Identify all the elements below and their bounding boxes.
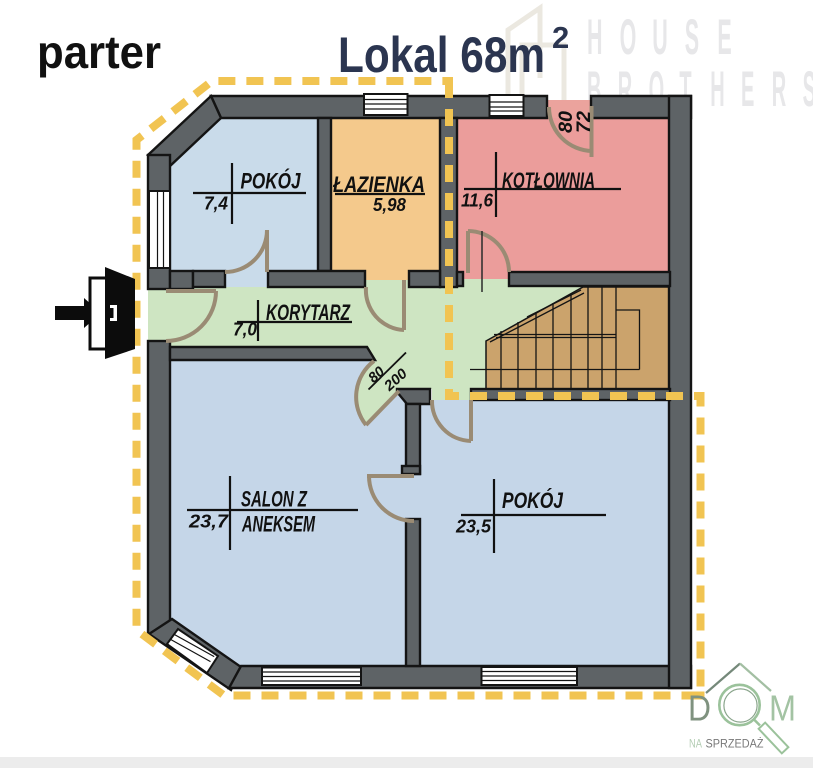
- svg-text:D: D: [688, 688, 711, 729]
- svg-text:23,5: 23,5: [455, 517, 492, 537]
- svg-text:H: H: [587, 10, 603, 66]
- svg-text:KOTŁOWNIA: KOTŁOWNIA: [502, 168, 595, 193]
- svg-text:POKÓJ: POKÓJ: [241, 169, 302, 194]
- svg-text:23,7: 23,7: [188, 512, 229, 532]
- svg-text:H: H: [710, 63, 724, 118]
- svg-text:O: O: [620, 10, 637, 66]
- svg-text:11,6: 11,6: [461, 191, 494, 211]
- svg-text:5,98: 5,98: [373, 195, 406, 215]
- svg-text:S: S: [803, 63, 813, 118]
- svg-text:E: E: [717, 10, 731, 66]
- svg-text:ANEKSEM: ANEKSEM: [241, 512, 315, 537]
- svg-text:KORYTARZ: KORYTARZ: [266, 300, 351, 325]
- svg-text:S: S: [685, 10, 699, 66]
- svg-text:7,0: 7,0: [233, 320, 257, 340]
- svg-text:NA: NA: [689, 739, 702, 751]
- svg-text:Lokal 68m: Lokal 68m: [338, 27, 545, 83]
- svg-text:7,4: 7,4: [204, 194, 228, 214]
- svg-text:72: 72: [574, 111, 595, 133]
- svg-text:POKÓJ: POKÓJ: [502, 488, 564, 513]
- svg-text:M: M: [769, 688, 796, 729]
- svg-text:ŁAZIENKA: ŁAZIENKA: [332, 172, 425, 197]
- svg-text:parter: parter: [37, 26, 161, 78]
- svg-text:SPRZEDAŻ: SPRZEDAŻ: [706, 738, 764, 751]
- svg-text:U: U: [652, 10, 668, 66]
- svg-text:2: 2: [552, 20, 569, 55]
- svg-text:R: R: [772, 63, 786, 118]
- svg-text:SALON Z: SALON Z: [241, 487, 308, 512]
- svg-text:E: E: [741, 63, 754, 118]
